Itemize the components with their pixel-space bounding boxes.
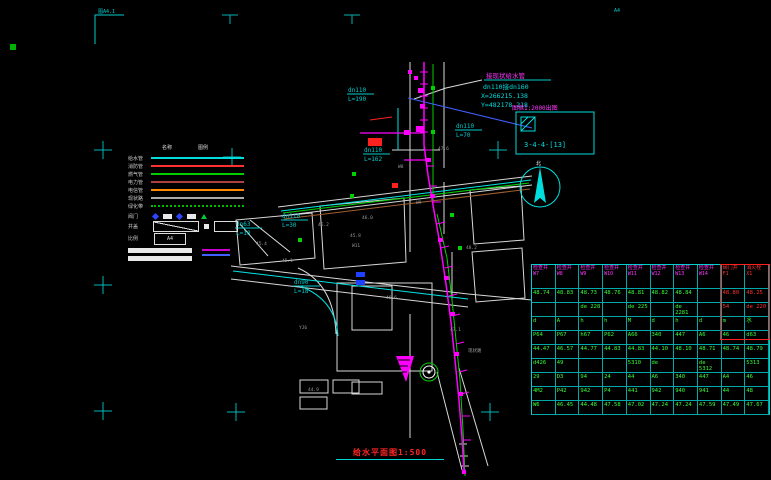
legend-scale-row: 比例 A4 [128,232,244,245]
table-cell: 48.79 [745,345,769,359]
hydrant-box-icon [187,214,196,219]
table-cell: h67 [579,331,603,345]
scale-bar [128,248,192,253]
marker-triangle-icon [201,214,207,219]
table-cell: de 225 [627,303,651,317]
table-cell: 46 [722,331,746,345]
spot-annotation: 46.0 [362,215,373,221]
title-underline [336,459,444,460]
table-cell: 340 [651,331,675,345]
table-cell: A4 [722,373,746,387]
legend-item-line [151,157,244,159]
table-cell: h [674,317,698,331]
table-cell: M [627,317,651,331]
table-cell: 29 [532,373,556,387]
table-cell: de 5312 [698,359,722,373]
legend-item-label: 现状路 [128,195,148,202]
pipe-length-label: L=18 [294,288,309,295]
table-cell: de [651,359,675,373]
table-cell: d63 [745,331,769,345]
table-header-cell: 检查井 W12 [651,265,675,289]
frame-marks: 图A4.1 A4 [10,8,620,50]
legend-item: 给水管 [128,154,244,162]
spot-annotation: W8 [398,164,404,170]
legend-col-symbol: 图例 [198,144,208,151]
legend-scale-label: 比例 [128,235,148,242]
table-cell: 44.48 [579,401,603,415]
table-cell: 47.59 [698,401,722,415]
table-cell [532,303,556,317]
table-cell: de 2281 [674,303,698,317]
spot-annotation: 47.6 [438,146,449,152]
table-header-cell: 阀门井 F1 [722,265,746,289]
parcel-lines [231,62,532,470]
legend-item-line [151,189,244,191]
table-cell: 942 [651,387,675,401]
table-cell: 46 [745,373,769,387]
spot-annotation: 44.9 [308,387,319,393]
table-cell: 44.47 [532,345,556,359]
small-square-icon [204,224,209,229]
table-cell: 48.71 [698,345,722,359]
legend-item: 电信管 [128,186,244,194]
table-cell: 5310 [627,359,651,373]
drawing-title-text: 给水平面图1:500 [336,447,444,458]
legend-item-line [151,165,244,167]
legend-item-label: 给水管 [128,155,148,162]
legend-item-label: 燃气管 [128,171,148,178]
legend-item-label: 消防管 [128,163,148,170]
table-cell: d426 [532,359,556,373]
table-cell: 441 [627,387,651,401]
table-header-cell: 消火栓 X1 [745,265,769,289]
legend-item-label: 电力管 [128,179,148,186]
pipe-length-label: L=190 [348,96,366,103]
table-cell: 48.74 [532,289,556,303]
table-cell: 44 [722,387,746,401]
legend-col-name: 名称 [162,144,172,151]
connection-note: 接现状给水管 dn110接dn160 X=266215.138 Y=482178… [481,71,551,109]
scale-bars [128,248,244,261]
table-header-cell: 检查井 W7 [532,265,556,289]
survey-point [420,363,438,381]
pipe-label: dn90 [294,279,309,286]
table-cell: 47.24 [651,401,675,415]
sheet-code: 3-4-4-[13] [524,141,566,149]
table-cell: P42 [556,387,580,401]
table-cell: h [603,317,627,331]
table-cell: de 220 [745,303,769,317]
table-cell: 47.67 [745,401,769,415]
legend-blue-line [202,254,230,256]
table-cell: W6 [532,401,556,415]
table-cell: 44.83 [627,345,651,359]
table-cell: 水 [745,317,769,331]
edge-green-square [10,44,16,50]
table-header-cell: 检查井 W8 [556,265,580,289]
table-cell: A [556,317,580,331]
spot-annotation: 46.6 [386,295,397,301]
north-label: 北 [536,160,541,167]
legend-item-line [151,173,244,175]
frame-corner-label: 图A4.1 [98,9,115,15]
spot-annotation: 46.2 [318,222,329,228]
table-cell [651,303,675,317]
table-cell: P62 [603,331,627,345]
table-cell [698,289,722,303]
pipe-length-label: L=30 [282,222,297,229]
legend-item: 现状路 [128,194,244,202]
valve-diamond-icon [176,212,183,219]
well-table-grid: 检查井 W7检查井 W8检查井 W9检查井 W10检查井 W11检查井 W12检… [531,264,770,415]
scale-bar [128,256,192,261]
table-cell: P67 [556,331,580,345]
table-cell: 48.81 [627,289,651,303]
legend-markers-label: 阀门 [128,213,148,220]
parallelogram-icon [153,221,199,232]
table-cell [603,303,627,317]
well-table: 检查井 W7检查井 W8检查井 W9检查井 W10检查井 W11检查井 W12检… [531,264,770,415]
table-cell: 941 [698,387,722,401]
legend-magenta-line [202,249,230,251]
table-cell: A6 [698,331,722,345]
spot-annotation: 47.1 [450,327,461,333]
pipe-label: dn110 [282,213,300,220]
connection-note-pipe: dn110接dn160 [483,82,529,91]
table-cell: 447 [674,331,698,345]
table-cell: de 228 [579,303,603,317]
table-cell: P64 [532,331,556,345]
table-cell: 47.49 [722,401,746,415]
table-cell: A6 [651,373,675,387]
valve-diamond-icon [152,212,159,219]
table-cell: 4M2 [532,387,556,401]
legend-item: 绿化带 [128,202,244,210]
table-cell: 340 [674,373,698,387]
spot-annotation: W9 [416,200,422,206]
legend-item-label: 电信管 [128,187,148,194]
legend-panel: 名称 图例 给水管消防管燃气管电力管电信管现状路绿化带 阀门 井盖 比例 A4 [128,144,244,261]
table-cell: 44 [627,373,651,387]
table-cell [722,359,746,373]
table-cell: 47.24 [674,401,698,415]
label-layer: dn110L=190dn110L=70dn110L=30dn63L=10dn11… [235,87,482,393]
pipe-label: dn110 [364,147,382,154]
table-cell: P4 [603,387,627,401]
pipe-label: dn110 [348,87,366,94]
connection-note-x: X=266215.138 [481,92,528,100]
table-cell: 447 [698,373,722,387]
detail-scale-note: 图框1:2000出图 [512,104,558,112]
table-cell: 46.45 [556,401,580,415]
table-cell [579,359,603,373]
table-cell [698,303,722,317]
table-cell: d [532,317,556,331]
table-cell: A66 [627,331,651,345]
table-cell: D3 [556,373,580,387]
table-cell: 48.82 [651,289,675,303]
table-cell: 94 [579,373,603,387]
spot-annotation: W11 [352,243,360,249]
gas-lines [283,64,529,476]
table-cell: 48.73 [579,289,603,303]
drawing-title: 给水平面图1:500 [336,447,444,460]
spot-annotation: 45.1 [282,258,293,264]
legend-cover-row: 井盖 [128,220,244,232]
table-header-cell: 检查井 W13 [674,265,698,289]
table-cell: 48.10 [674,345,698,359]
table-cell: 5313 [745,359,769,373]
legend-item: 燃气管 [128,170,244,178]
cad-viewport: 图A4.1 A4 [0,0,771,480]
legend-cover-label: 井盖 [128,223,148,230]
legend-item-line [151,197,244,199]
table-cell: d [651,317,675,331]
table-header-cell: 检查井 W9 [579,265,603,289]
sheet-size-box: A4 [154,233,186,245]
main-pipeline [360,62,471,474]
table-cell: 44.10 [651,345,675,359]
spot-annotation: 48.2 [466,245,477,251]
table-cell: 44.77 [579,345,603,359]
table-header-cell: 检查井 W11 [627,265,651,289]
table-cell: 49 [556,359,580,373]
table-cell: 48.25 [745,289,769,303]
spot-annotation: 现状路 [468,347,482,354]
table-cell: 48.80 [722,289,746,303]
spot-annotation: 45.4 [256,241,267,247]
connection-note-title: 接现状给水管 [486,71,526,80]
table-cell: 942 [579,387,603,401]
table-cell: 47.02 [627,401,651,415]
table-header-cell: 检查井 W14 [698,265,722,289]
table-cell: h [579,317,603,331]
legend-header: 名称 图例 [162,144,244,151]
legend-item-line [151,181,244,183]
table-cell: 44.83 [603,345,627,359]
table-cell: d [698,317,722,331]
frame-topright-label: A4 [614,8,620,14]
detail-box: 图框1:2000出图 3-4-4-[13] [512,104,594,154]
table-cell: 54 [722,303,746,317]
table-cell [556,303,580,317]
spot-annotation: YJ6 [299,325,307,331]
table-cell: 46.57 [556,345,580,359]
table-cell: 48.83 [556,289,580,303]
table-cell: 24 [603,373,627,387]
table-cell: 48.74 [722,345,746,359]
hydrant-box-icon [163,214,172,219]
legend-markers-row: 阀门 [128,212,244,220]
legend-rows: 给水管消防管燃气管电力管电信管现状路绿化带 [128,154,244,210]
table-cell [603,359,627,373]
table-cell [674,359,698,373]
legend-item-line [151,205,244,207]
pipe-length-label: L=70 [456,132,471,139]
legend-item: 消防管 [128,162,244,170]
table-cell: 48.76 [603,289,627,303]
legend-item: 电力管 [128,178,244,186]
table-cell: 940 [674,387,698,401]
open-rect-icon [214,221,238,232]
spot-annotation: 45.8 [350,233,361,239]
pipe-label: dn110 [456,123,474,130]
table-cell: 48.84 [674,289,698,303]
table-cell: 48 [745,387,769,401]
table-cell: m [722,317,746,331]
pipe-length-label: L=162 [364,156,382,163]
table-cell: 47.58 [603,401,627,415]
table-header-cell: 检查井 W10 [603,265,627,289]
legend-item-label: 绿化带 [128,203,148,210]
